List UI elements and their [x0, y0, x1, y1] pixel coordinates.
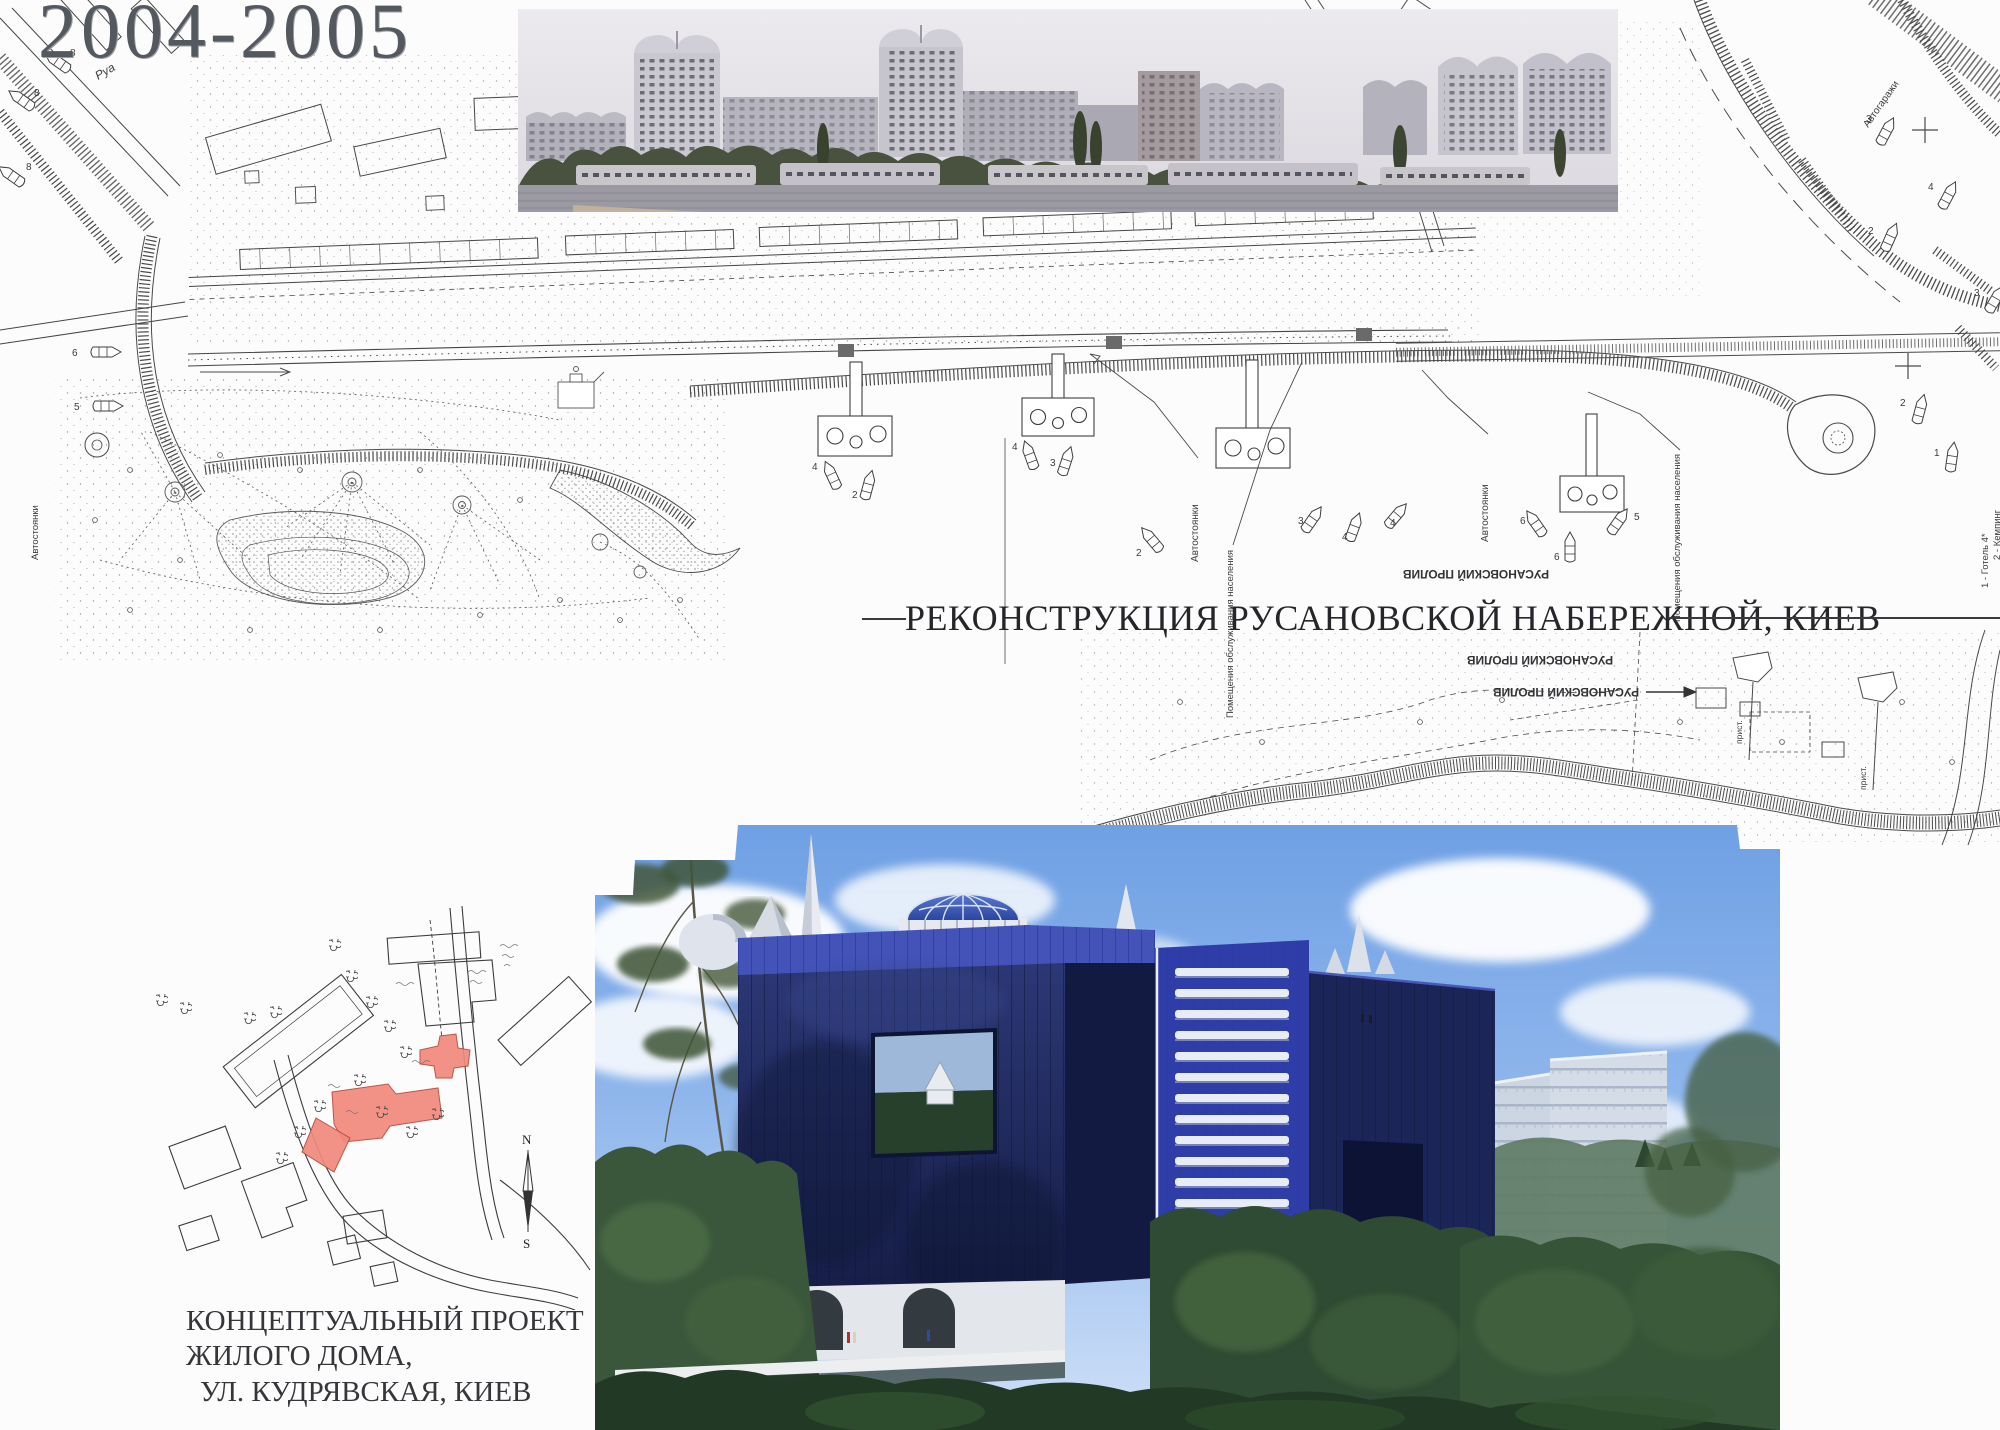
kudriavska-caption-line3: УЛ. КУДРЯВСКАЯ, КИЕВ: [186, 1375, 584, 1410]
boat-number: 8: [34, 88, 40, 99]
boat-number: 2: [1868, 226, 1874, 237]
boat-number: 6: [1520, 516, 1526, 527]
mini-red-buildings: [302, 1034, 470, 1172]
mini-site-plan: N S: [120, 880, 600, 1310]
boat-number: 2: [1136, 548, 1142, 559]
parking-label-1: Автостоянки: [1190, 504, 1201, 562]
boat-number: 4: [812, 462, 818, 473]
boat-number: 8: [26, 162, 32, 173]
boat-number: 3: [1974, 288, 1980, 299]
boat-number: 4: [1928, 182, 1934, 193]
caption-rule-right: [1668, 617, 2000, 619]
compass-north-label: N: [522, 1132, 532, 1147]
parking-label-2: Автостоянки: [1480, 484, 1491, 542]
legend-camping: 2 - Кемпинг: [1992, 509, 2000, 560]
kudriavska-caption-line2: ЖИЛОГО ДОМА,: [186, 1339, 584, 1374]
boat-number: 4: [1342, 532, 1348, 543]
pier-label-1: прист.: [1734, 720, 1744, 744]
boat-number: 3: [1050, 458, 1056, 469]
boat-number: 5: [1634, 512, 1640, 523]
compass: N S: [522, 1132, 533, 1251]
boat: [91, 347, 121, 357]
boat-number: 6: [1554, 552, 1560, 563]
legend-hotel: 1 - Готель 4*: [1980, 533, 1991, 588]
map-channel-boats: 3 4 2 3 2 1: [1866, 114, 2000, 473]
caption-rule-left: [862, 618, 906, 620]
compass-south-label: S: [523, 1236, 530, 1251]
boat-number: 3: [1866, 114, 1872, 125]
boat-number: 2: [1900, 398, 1906, 409]
mini-trees: [154, 937, 444, 1164]
pier-label-2: прист.: [1858, 766, 1868, 790]
boat-number: 2: [852, 490, 858, 501]
page-title: 2004-2005: [38, 0, 412, 76]
boat-number: 5: [74, 402, 80, 413]
boat-number: 6: [72, 348, 78, 359]
building-render: [595, 822, 1780, 1430]
boat-number: 4: [1012, 442, 1018, 453]
strait-label-2: РУСАНОВСКИЙ ПРОЛИВ: [1466, 653, 1613, 668]
portfolio-page: 8 8 8 Руа 6 5 Автостоянки: [0, 0, 2000, 1430]
kudriavska-caption-line1: КОНЦЕПТУАЛЬНЫЙ ПРОЕКТ: [186, 1304, 584, 1339]
parking-label-left: Автостоянки: [30, 505, 41, 560]
kudriavska-caption: КОНЦЕПТУАЛЬНЫЙ ПРОЕКТ ЖИЛОГО ДОМА, УЛ. К…: [186, 1304, 584, 1410]
boat-number: 3: [1298, 516, 1304, 527]
waterfront-photo: [518, 9, 1618, 212]
boat-number: 1: [1934, 448, 1940, 459]
map-piers: [818, 354, 1624, 512]
strait-label-1: РУСАНОВСКИЙ ПРОЛИВ: [1402, 567, 1549, 582]
boat-number: 4: [1390, 518, 1396, 529]
